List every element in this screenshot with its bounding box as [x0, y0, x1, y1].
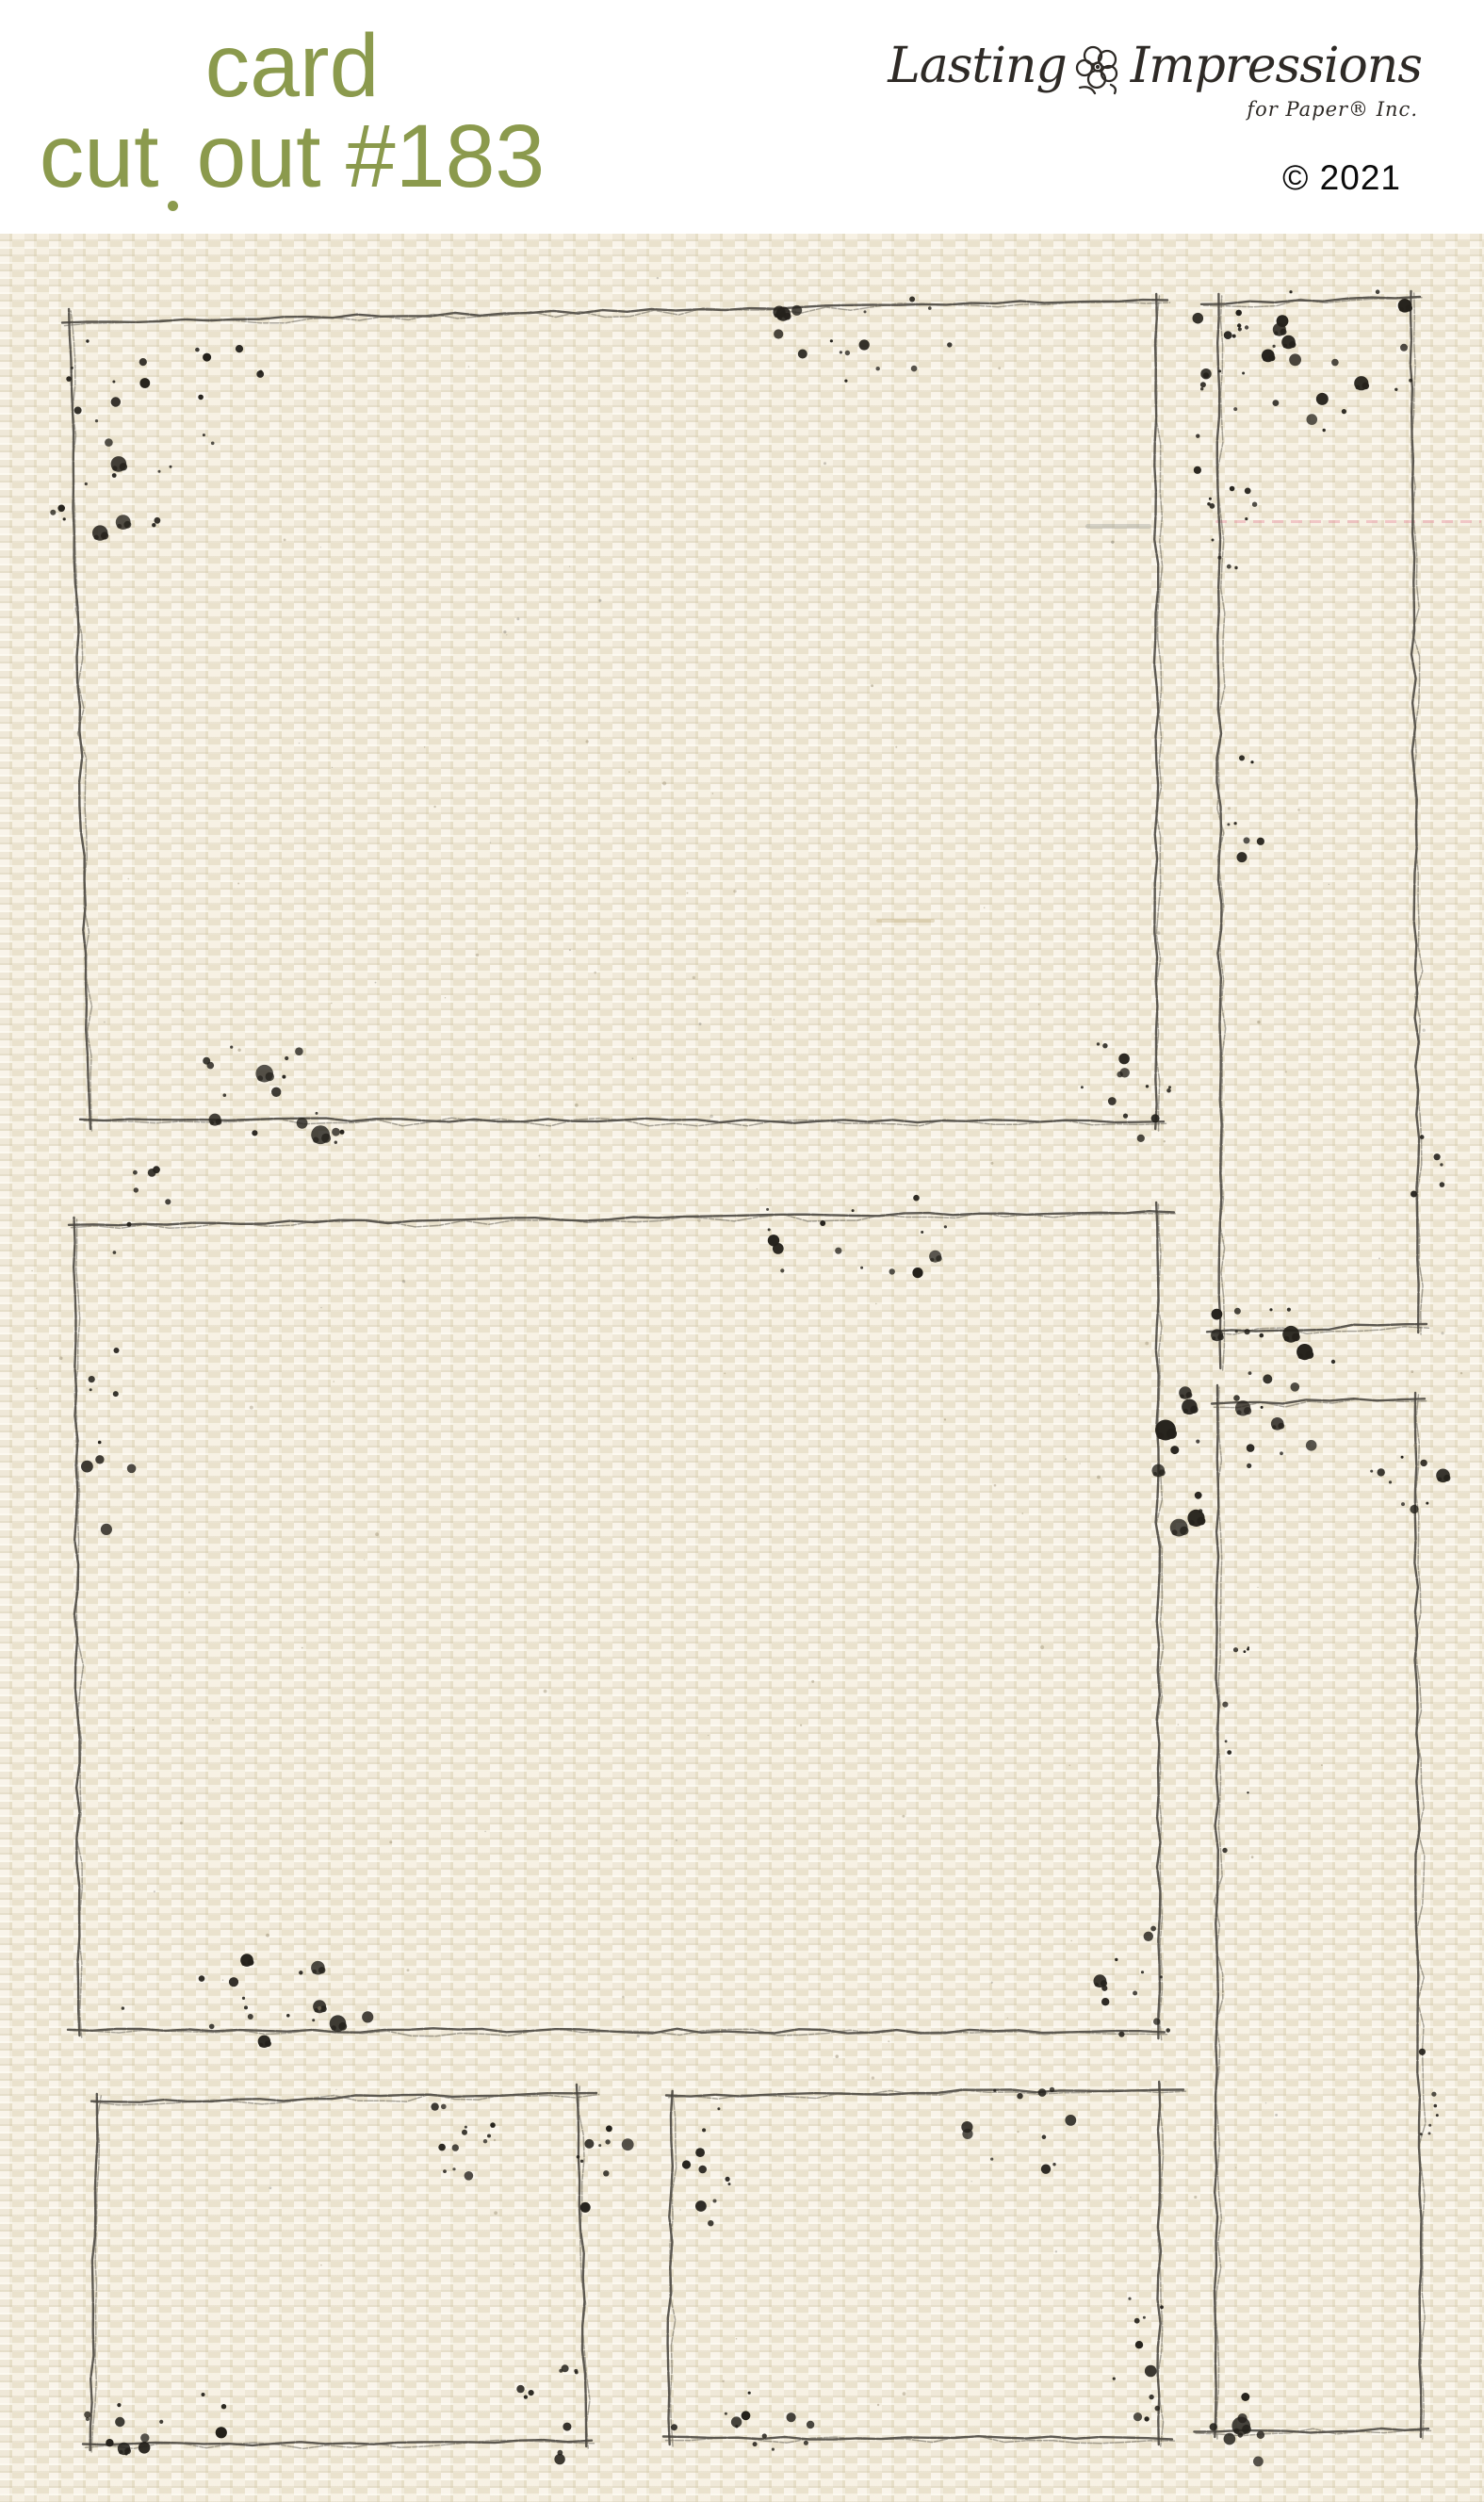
copyright-text: © 2021: [888, 158, 1422, 198]
brand-word-lasting: Lasting: [888, 38, 1067, 94]
title-line2-left: cut: [40, 106, 159, 206]
brand-word-impressions: Impressions: [1131, 38, 1422, 94]
title-dot-icon: [168, 201, 178, 211]
brand-tagline: for Paper® Inc.: [888, 98, 1422, 121]
brand-logo: Lasting Impressions for Paper® Inc.: [888, 36, 1422, 198]
canvas-area: [0, 234, 1484, 2502]
flower-icon: [1068, 38, 1129, 98]
product-title: card cutout #183: [28, 21, 556, 211]
brand-wordmark: Lasting Impressions: [888, 36, 1422, 98]
cutout-sheet-page: card cutout #183 Lasting: [0, 0, 1484, 2502]
title-line2-right: out #183: [196, 106, 545, 206]
title-line2: cutout #183: [28, 111, 556, 211]
title-line1: card: [28, 21, 556, 111]
header: card cutout #183 Lasting: [0, 0, 1484, 234]
